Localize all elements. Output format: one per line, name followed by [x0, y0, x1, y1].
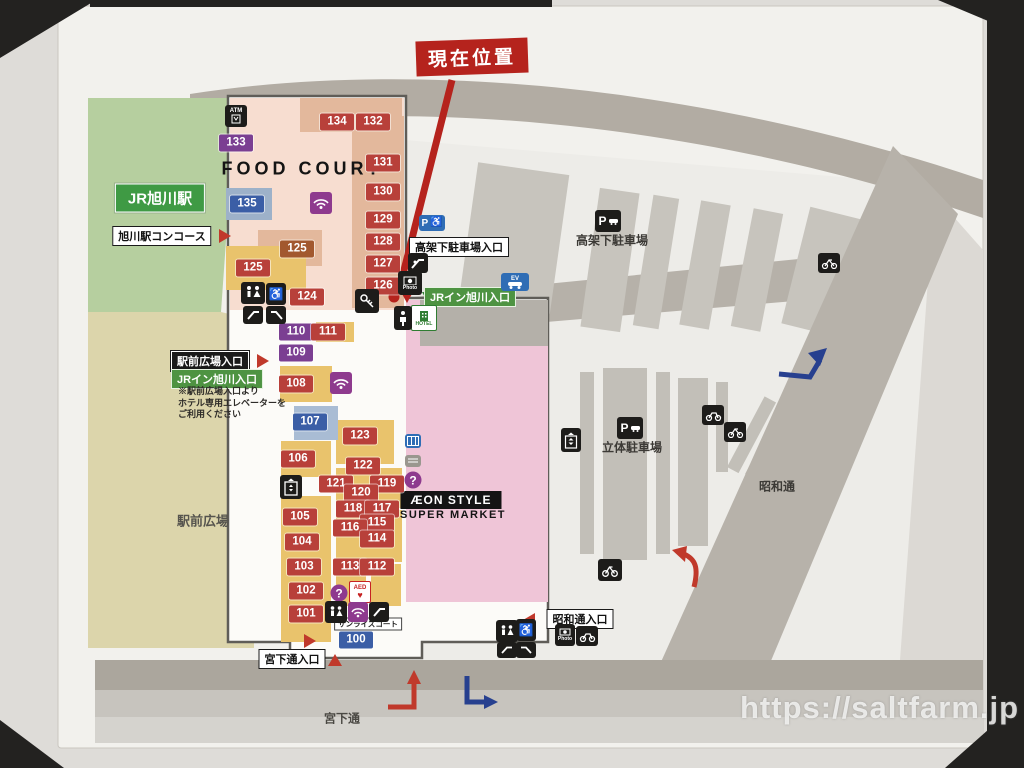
- showa-street-text: 昭和通: [759, 478, 795, 495]
- watermark: https://saltfarm.jp: [740, 690, 1019, 726]
- bicycle-parking-icon-3: [598, 559, 622, 581]
- escalator-icon-5: [516, 642, 536, 658]
- note-line-1: ※駅前広場入口より: [178, 386, 286, 398]
- escalator-up-icon: [243, 306, 263, 324]
- aed-icon: AED ♥: [349, 581, 371, 603]
- unit-114: 114: [360, 531, 394, 548]
- wheelchair-icon: ♿: [266, 283, 286, 305]
- note-line-2: ホテル専用エレベーターを: [178, 398, 286, 410]
- accessible-parking-icon: P ♿: [419, 215, 445, 231]
- unit-135: 135: [230, 196, 264, 213]
- miyashita-street-text: 宮下通: [324, 710, 360, 727]
- key-locker-icon: [355, 289, 379, 313]
- unit-107: 107: [293, 414, 327, 431]
- escalator-down-icon: [266, 306, 286, 324]
- unit-120: 120: [344, 485, 378, 502]
- aeon-style-logo: ÆON STYLE: [400, 491, 501, 509]
- photo-edge-top: [90, 0, 552, 7]
- unit-125-lower: 125: [236, 260, 270, 277]
- escalator-icon-3: [369, 602, 389, 622]
- unit-134: 134: [320, 114, 354, 131]
- unit-132: 132: [356, 114, 390, 131]
- wifi-icon-2: [330, 372, 352, 394]
- toilet-baby-icon: [325, 601, 347, 623]
- escalator-icon-4: [497, 642, 517, 658]
- unit-103: 103: [287, 559, 321, 576]
- information-icon-2: ?: [331, 585, 348, 602]
- unit-109: 109: [279, 345, 313, 362]
- note-line-3: ご利用ください: [178, 409, 286, 421]
- toilet-icon: [241, 282, 265, 304]
- nursing-room-icon: [394, 306, 412, 330]
- station-label: JR旭川駅: [115, 184, 205, 213]
- wheelchair-icon-2: ♿: [516, 619, 536, 641]
- unit-101: 101: [289, 606, 323, 623]
- elevated-parking-text: 高架下駐車場: [576, 232, 648, 249]
- hotel-elevator-note: ※駅前広場入口より ホテル専用エレベーターを ご利用ください: [178, 386, 286, 421]
- parking-icon-2: P: [617, 417, 643, 439]
- unit-100: 100: [339, 632, 373, 649]
- motorcycle-parking-icon-2: [702, 405, 724, 425]
- information-icon: ?: [405, 472, 422, 489]
- ev-charging-icon: EV: [501, 273, 529, 291]
- unit-133: 133: [219, 135, 253, 152]
- elevator-icon-2: [561, 428, 581, 452]
- wifi-icon-3: [348, 602, 368, 622]
- supermarket-text: SUPER MARKET: [400, 509, 506, 521]
- parking-icon-2-label: P: [620, 422, 628, 434]
- hotel-icon: HOTEL: [411, 305, 437, 331]
- parking-icon-label: P: [598, 215, 606, 227]
- unit-112: 112: [360, 559, 394, 576]
- unit-111: 111: [311, 324, 345, 341]
- unit-110: 110: [279, 324, 313, 341]
- multistory-parking-text: 立体駐車場: [602, 439, 662, 456]
- photo-icon-2-label: Photo: [558, 636, 572, 642]
- photo-spot-icon: Photo: [398, 271, 422, 295]
- concourse-label: 旭川駅コンコース: [112, 226, 211, 246]
- unit-123: 123: [343, 428, 377, 445]
- coin-locker-icon: [405, 434, 421, 448]
- unit-106: 106: [281, 451, 315, 468]
- unit-102: 102: [289, 583, 323, 600]
- miyashita-entrance-label: 宮下通入口: [259, 649, 326, 669]
- unit-125-upper: 125: [280, 241, 314, 258]
- plaza-entrance-label: 駅前広場入口: [171, 351, 249, 371]
- unit-128: 128: [366, 234, 400, 251]
- unit-105: 105: [283, 509, 317, 526]
- service-counter-icon: [405, 455, 421, 467]
- photo-edge-right: [987, 20, 1024, 768]
- elevator-icon: [280, 475, 302, 499]
- info-icon-label: ?: [409, 473, 416, 487]
- unit-127: 127: [366, 256, 400, 273]
- photo-icon-label: Photo: [403, 285, 417, 291]
- current-location-banner: 現在位置: [415, 38, 528, 77]
- accessible-parking-p: P: [421, 218, 428, 229]
- plaza-text: 駅前広場: [177, 511, 229, 530]
- bicycle-parking-icon: [818, 253, 840, 273]
- map-sign-photo: 現在位置 JR旭川駅 旭川駅コンコース FOOD COURT 高架下駐車場入口 …: [0, 0, 1024, 768]
- bicycle-parking-icon-2: [724, 422, 746, 442]
- unit-122: 122: [346, 458, 380, 475]
- unit-124: 124: [290, 289, 324, 306]
- unit-131: 131: [366, 155, 400, 172]
- hotel-icon-label: HOTEL: [416, 321, 433, 327]
- food-court-title: FOOD COURT: [222, 159, 383, 180]
- unit-129: 129: [366, 212, 400, 229]
- unit-130: 130: [366, 184, 400, 201]
- wifi-icon: [310, 192, 332, 214]
- escalator-icon: [408, 253, 428, 273]
- parking-icon: P: [595, 210, 621, 232]
- unit-108: 108: [279, 376, 313, 393]
- photo-spot-icon-2: Photo: [555, 624, 575, 646]
- atm-icon: ATM: [225, 105, 247, 127]
- info-icon-2-label: ?: [335, 586, 342, 600]
- motorcycle-parking-icon: [576, 626, 598, 646]
- unit-104: 104: [285, 534, 319, 551]
- toilet-icon-2: [496, 620, 518, 642]
